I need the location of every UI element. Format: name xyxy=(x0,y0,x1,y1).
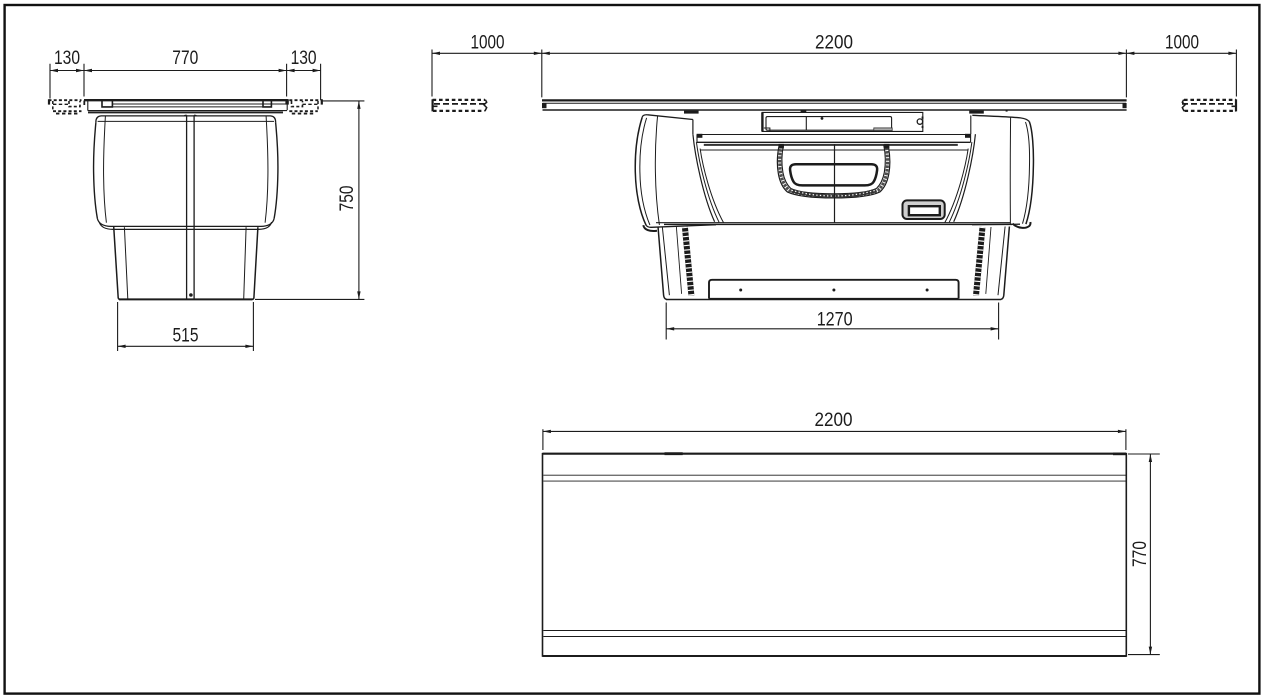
svg-text:2200: 2200 xyxy=(815,33,853,54)
svg-text:770: 770 xyxy=(172,48,198,69)
svg-text:2200: 2200 xyxy=(815,410,853,431)
svg-text:770: 770 xyxy=(1130,541,1151,567)
svg-text:1000: 1000 xyxy=(1165,33,1199,54)
svg-text:750: 750 xyxy=(337,185,358,211)
svg-text:1270: 1270 xyxy=(817,310,853,331)
svg-text:130: 130 xyxy=(54,48,80,69)
svg-text:1000: 1000 xyxy=(471,33,505,54)
svg-text:515: 515 xyxy=(173,325,199,346)
svg-text:130: 130 xyxy=(291,48,317,69)
